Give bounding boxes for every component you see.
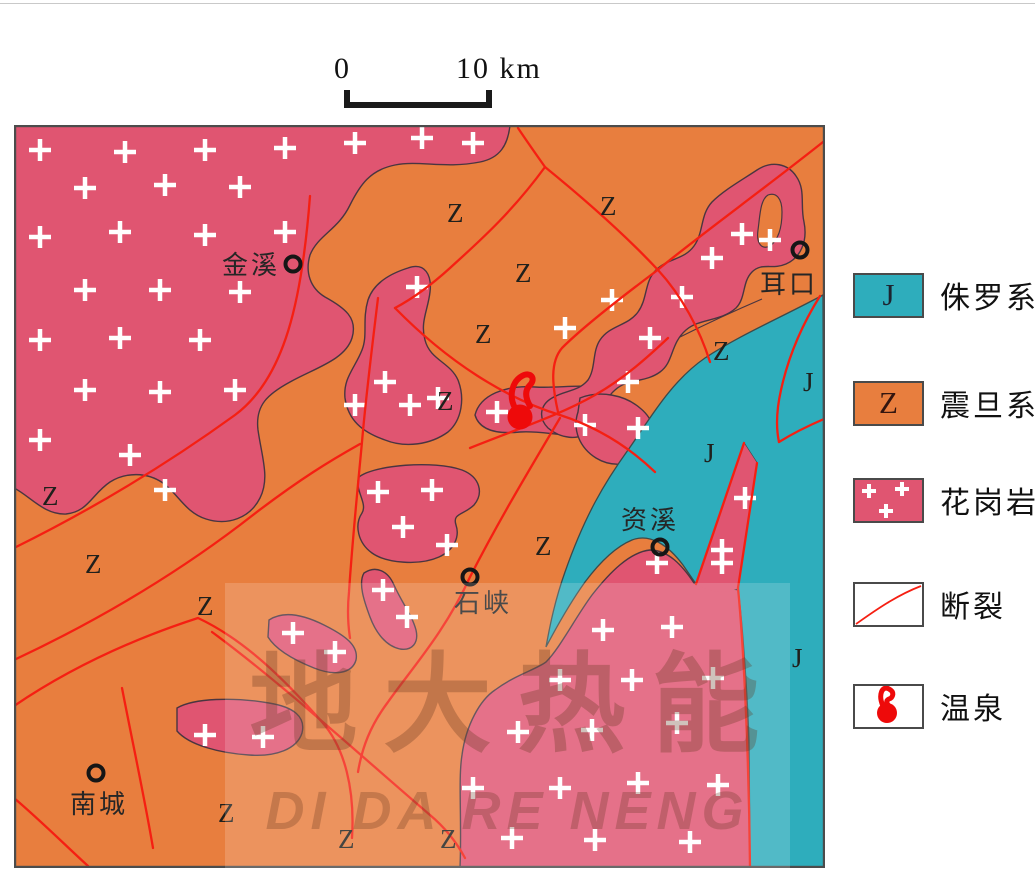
legend-swatch-jurassic: J [853,273,924,318]
scale-end-label: 10 km [456,52,542,86]
legend-code-jurassic: J [855,275,922,316]
unit-label-Z: Z [515,258,532,288]
unit-label-J: J [704,438,715,468]
legend-label-sinian: 震旦系 [940,381,1035,425]
town-label: 金溪 [222,251,280,280]
unit-label-Z: Z [475,319,492,349]
unit-label-Z: Z [447,198,464,228]
geological-map-figure: 0 10 km [0,0,1035,885]
fault-line-icon [855,584,922,625]
legend-label-hot-spring: 温泉 [940,684,1006,728]
legend-swatch-granite [853,478,924,523]
town-label: 南城 [70,790,128,819]
unit-label-Z: Z [218,798,235,828]
legend-swatch-hot-spring [853,684,924,729]
town-label: 资溪 [621,506,679,535]
town-label: 耳口 [760,270,818,299]
unit-label-Z: Z [197,591,214,621]
legend-item-jurassic: J 侏罗系 [853,272,1035,318]
unit-label-Z: Z [600,191,617,221]
scale-start-label: 0 [334,52,349,86]
unit-label-J: J [803,367,814,397]
unit-label-Z: Z [535,531,552,561]
map-canvas[interactable]: ZZZZZZZZZZZZZJJJ 金溪耳口资溪石峡南城 [14,125,825,868]
scale-bar: 0 10 km [328,52,568,112]
unit-label-Z: Z [440,824,457,854]
legend-label-fault: 断裂 [940,582,1006,626]
legend-swatch-fault [853,582,924,627]
legend-swatch-sinian: Z [853,381,924,426]
top-divider [0,3,1035,4]
legend-label-granite: 花岗岩 [940,478,1035,522]
legend-item-sinian: Z 震旦系 [853,380,1035,426]
legend-label-jurassic: 侏罗系 [940,273,1035,317]
hot-spring-icon [855,686,922,727]
unit-label-J: J [792,643,803,673]
legend-item-fault: 断裂 [853,581,1006,627]
scale-bar-bracket [328,86,528,110]
unit-label-Z: Z [42,481,59,511]
unit-label-Z: Z [338,824,355,854]
legend-code-sinian: Z [855,383,922,424]
granite-pattern-icon [855,480,922,521]
unit-label-Z: Z [85,549,102,579]
legend-item-hot-spring: 温泉 [853,683,1006,729]
unit-label-Z: Z [437,386,454,416]
legend-item-granite: 花岗岩 [853,477,1035,523]
town-label: 石峡 [454,589,512,618]
unit-label-Z: Z [713,336,730,366]
